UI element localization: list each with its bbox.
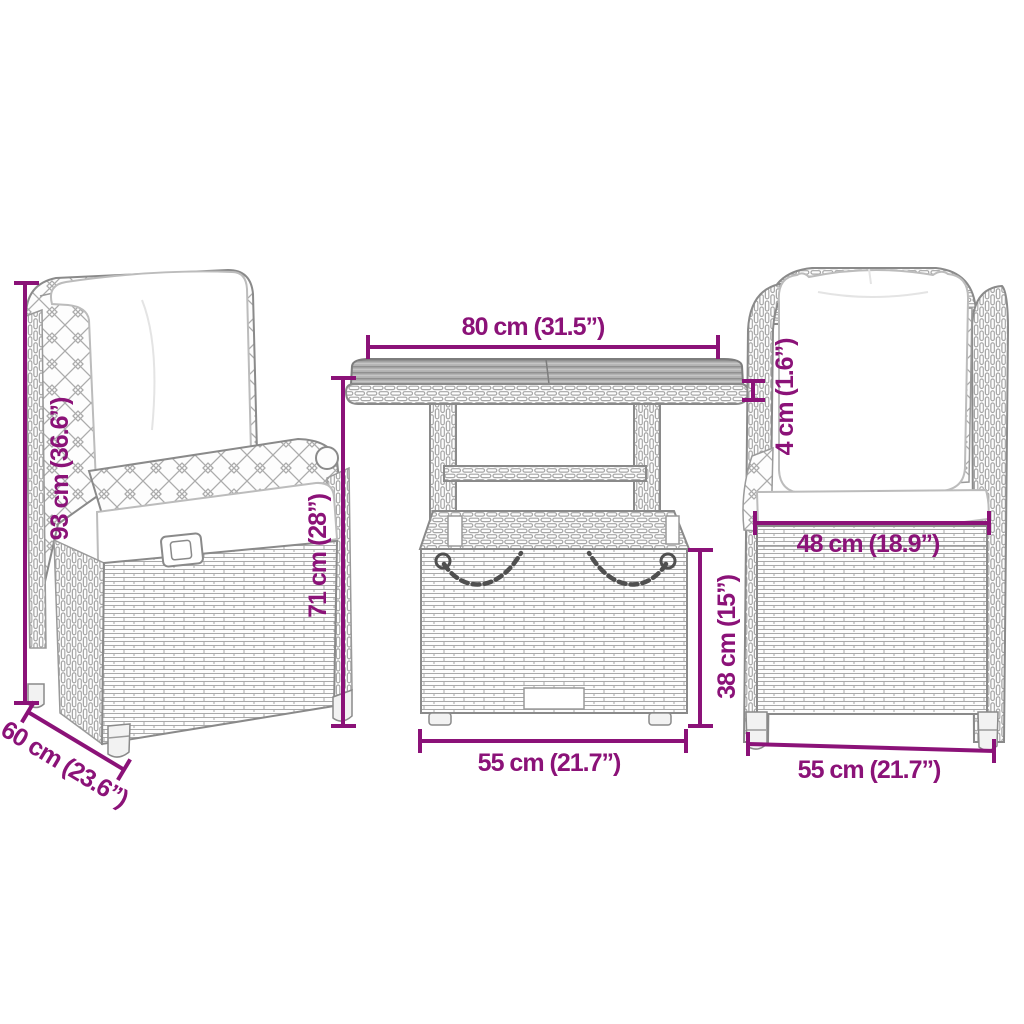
dim-table-base-width: 55 cm (21.7”) [420,729,686,777]
left-chair-base-side [54,540,104,744]
dimension-label: 93 cm (36.6”) [46,397,74,540]
bistro-set-illustration: 80 cm (31.5”) 93 cm (36.6”) 71 cm (28”) … [0,0,1024,1024]
left-chair-recline-buckle [161,533,204,567]
table-right-foot [649,713,671,725]
dimension-line [748,744,994,751]
dimension-label: 48 cm (18.9”) [797,530,940,558]
left-chair-back-edge [26,310,46,648]
dimension-label: 71 cm (28”) [304,493,332,617]
dim-chair-width: 55 cm (21.7”) [748,732,994,784]
table-apron [346,384,748,404]
table-crossbar [444,466,646,481]
table-left-latch [448,516,462,546]
table-label-plate [524,688,584,709]
right-chair-back-cushion [779,270,968,493]
dim-table-base-height: 38 cm (15”) [688,550,741,726]
dimension-label: 4 cm (1.6”) [771,338,799,456]
table-left-foot [429,713,451,725]
product-dimension-diagram: 80 cm (31.5”) 93 cm (36.6”) 71 cm (28”) … [0,0,1024,1024]
dim-table-width: 80 cm (31.5”) [368,313,718,359]
adjustable-table [346,359,748,725]
dimension-label: 55 cm (21.7”) [798,756,941,784]
table-right-latch [666,516,679,544]
left-armrest-scroll [316,447,338,469]
left-chair-base-front [102,541,337,744]
left-chair-front-left-foot [108,724,130,757]
dimension-label: 38 cm (15”) [713,574,741,698]
dimension-label: 55 cm (21.7”) [478,749,621,777]
dimension-label: 80 cm (31.5”) [462,313,605,341]
